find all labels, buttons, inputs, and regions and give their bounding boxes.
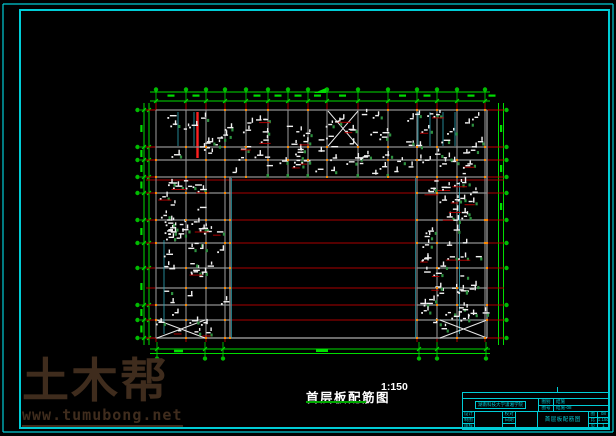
cad-screenshot: 首层板配筋图 1:150 土木帮 www.tumubong.net 湖南科技大学… — [0, 0, 616, 436]
watermark-brand: 土木帮 — [22, 356, 183, 405]
watermark: 土木帮 www.tumubong.net — [22, 356, 183, 427]
title-block: 湖南科技大学潇湘学院 图别 图号 结施 结施-08 设计 制图 审核 — [462, 392, 610, 430]
title-block-date-cell — [516, 412, 538, 429]
drawing-scale: 1:150 — [381, 381, 408, 393]
title-block-role-labels: 设计 制图 审核 — [463, 412, 475, 429]
grid-axis-layer — [146, 103, 504, 342]
title-block-signature-cell — [475, 412, 503, 429]
title-block-stub — [557, 387, 558, 393]
title-block-doc-values: 结施 结施-08 — [554, 399, 609, 411]
title-block-number-grid: 图08 比1:150 页1 — [589, 412, 609, 429]
organization-name: 湖南科技大学潇湘学院 — [475, 401, 526, 410]
title-block-doc-labels: 图别 图号 — [539, 399, 554, 411]
slab-edge-layer — [164, 112, 460, 338]
title-underline — [306, 401, 366, 403]
title-block-organization-cell: 湖南科技大学潇湘学院 — [463, 399, 539, 411]
drawing-title: 首层板配筋图 — [306, 387, 390, 406]
title-block-check-labels: 校对 日期 — [503, 412, 516, 429]
doc-no-value: 结施-08 — [554, 406, 609, 412]
watermark-url: www.tumubong.net — [22, 406, 183, 427]
doc-no-label: 图号 — [539, 406, 553, 412]
title-block-drawing-name: 首层板配筋图 — [538, 412, 589, 429]
